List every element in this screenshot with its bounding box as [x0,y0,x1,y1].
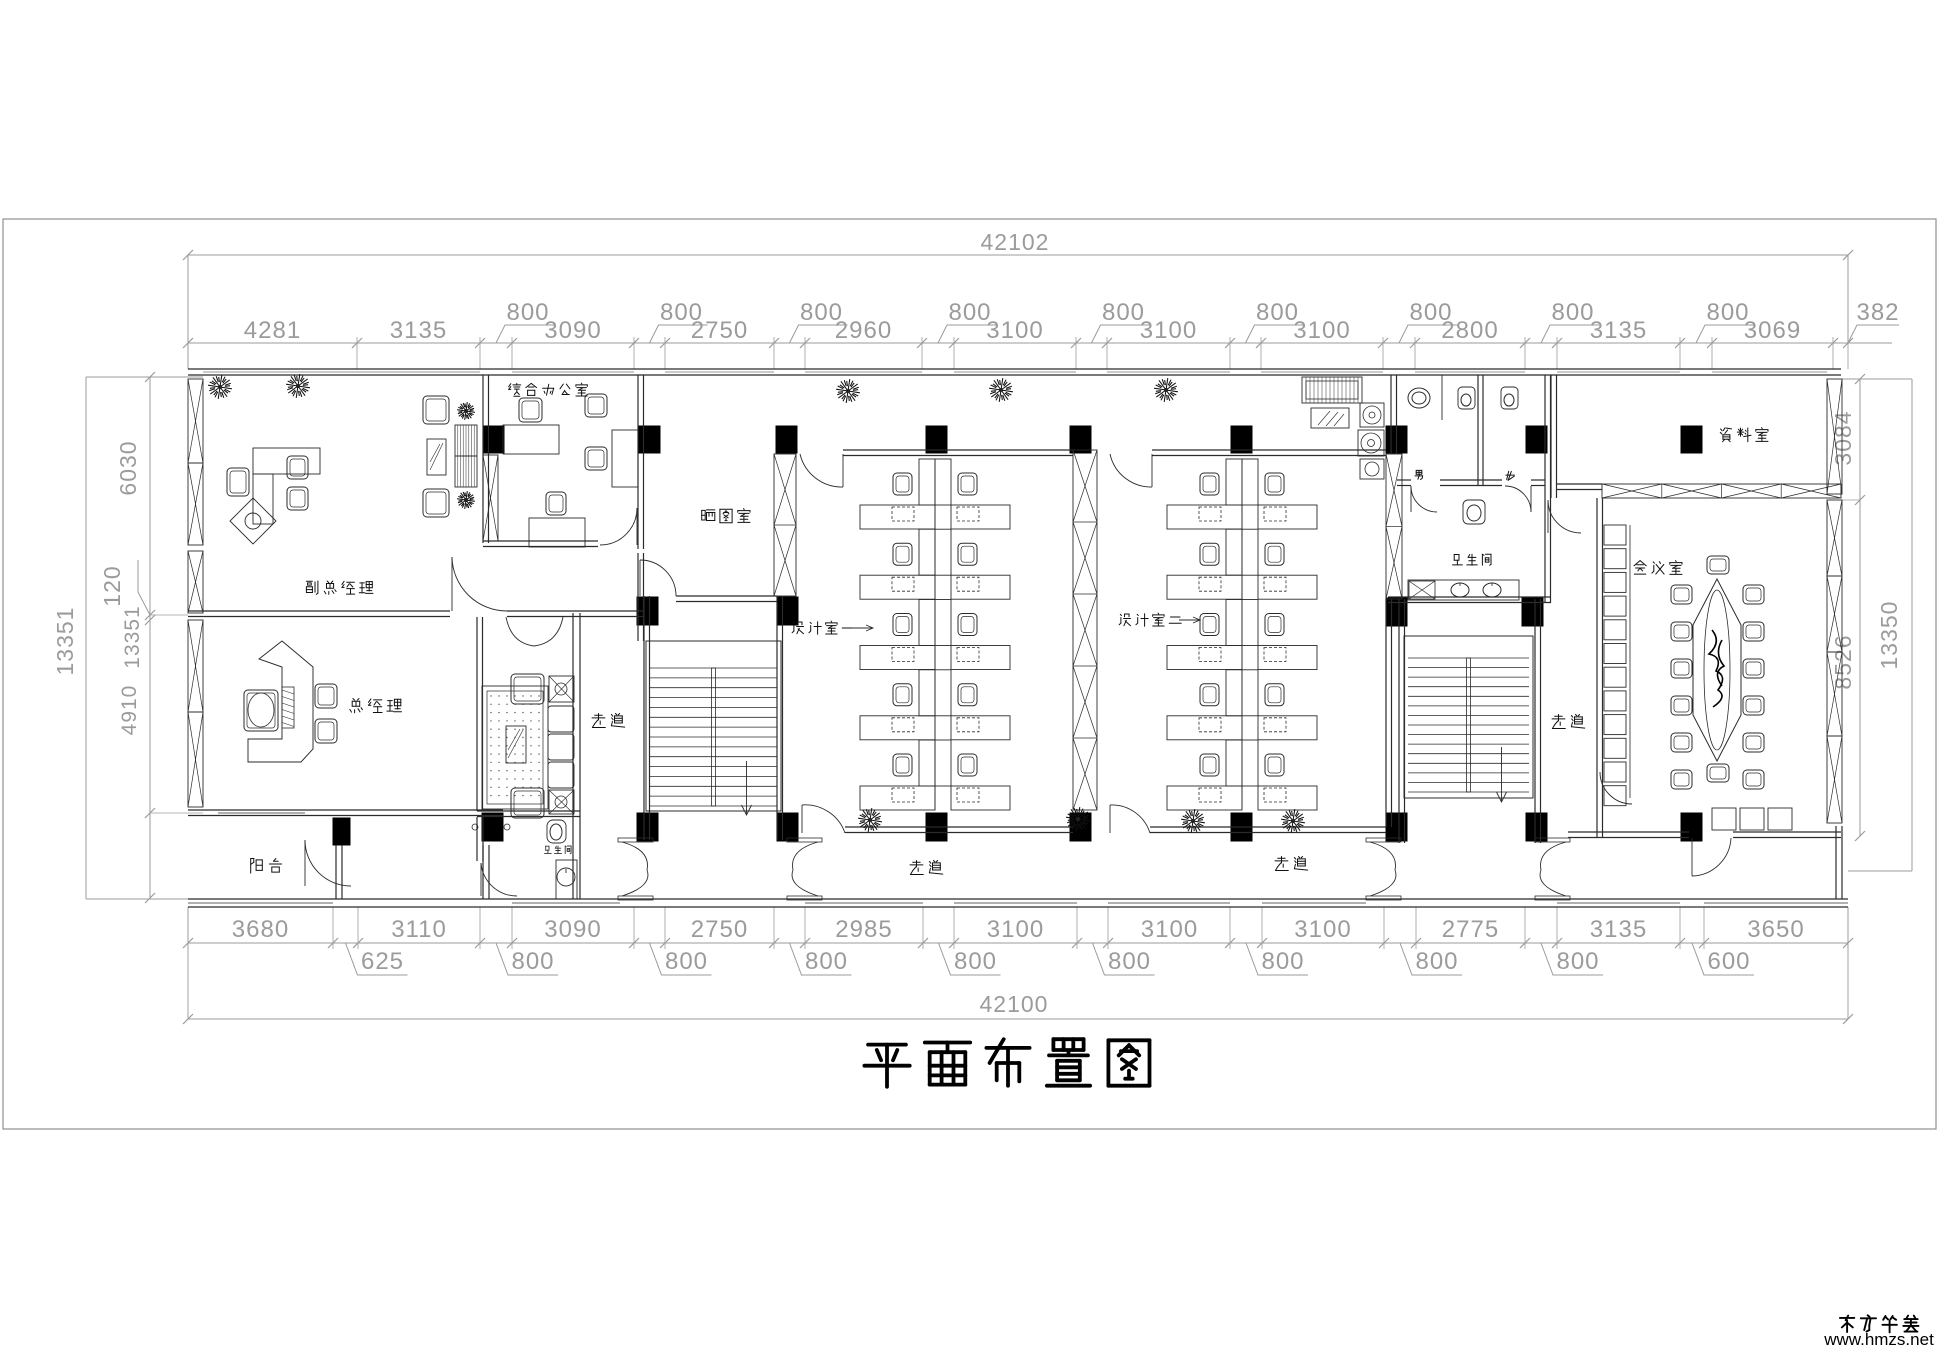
svg-text:800: 800 [1102,299,1145,326]
svg-text:800: 800 [1706,299,1749,326]
svg-text:13350: 13350 [1876,601,1902,670]
svg-text:800: 800 [800,299,843,326]
svg-text:600: 600 [1707,948,1750,975]
svg-text:3100: 3100 [1140,317,1197,344]
svg-text:3100: 3100 [1293,317,1350,344]
svg-text:3100: 3100 [987,916,1044,943]
svg-text:3084: 3084 [1830,410,1856,465]
svg-text:www.hmzs.net: www.hmzs.net [1823,1330,1934,1349]
svg-text:3069: 3069 [1744,317,1801,344]
svg-text:800: 800 [665,948,708,975]
svg-text:2985: 2985 [835,916,892,943]
svg-text:13351: 13351 [52,607,78,676]
svg-text:3135: 3135 [1590,317,1647,344]
svg-text:120: 120 [99,565,125,606]
svg-text:800: 800 [511,948,554,975]
svg-text:2750: 2750 [691,916,748,943]
svg-text:2960: 2960 [835,317,892,344]
svg-text:3135: 3135 [390,317,447,344]
svg-text:3100: 3100 [1294,916,1351,943]
svg-text:3100: 3100 [986,317,1043,344]
svg-text:3090: 3090 [544,317,601,344]
svg-text:3090: 3090 [544,916,601,943]
svg-text:800: 800 [1556,948,1599,975]
svg-text:800: 800 [660,299,703,326]
svg-text:800: 800 [1256,299,1299,326]
svg-text:800: 800 [1551,299,1594,326]
svg-text:3100: 3100 [1141,916,1198,943]
svg-text:800: 800 [506,299,549,326]
svg-text:3650: 3650 [1747,916,1804,943]
svg-text:42100: 42100 [980,991,1049,1017]
svg-text:4281: 4281 [244,317,301,344]
svg-text:13351: 13351 [121,605,144,668]
svg-text:800: 800 [1409,299,1452,326]
svg-text:4910: 4910 [118,685,141,736]
svg-text:800: 800 [1261,948,1304,975]
svg-text:800: 800 [805,948,848,975]
svg-text:382: 382 [1856,299,1899,326]
svg-text:8526: 8526 [1830,634,1856,689]
svg-text:2775: 2775 [1442,916,1499,943]
svg-text:42102: 42102 [981,229,1050,255]
svg-text:800: 800 [954,948,997,975]
svg-text:800: 800 [1415,948,1458,975]
svg-text:3110: 3110 [391,916,447,943]
svg-text:800: 800 [948,299,991,326]
svg-text:6030: 6030 [115,440,141,495]
svg-text:3135: 3135 [1590,916,1647,943]
svg-text:625: 625 [361,948,404,975]
svg-text:800: 800 [1108,948,1151,975]
svg-text:3680: 3680 [232,916,289,943]
